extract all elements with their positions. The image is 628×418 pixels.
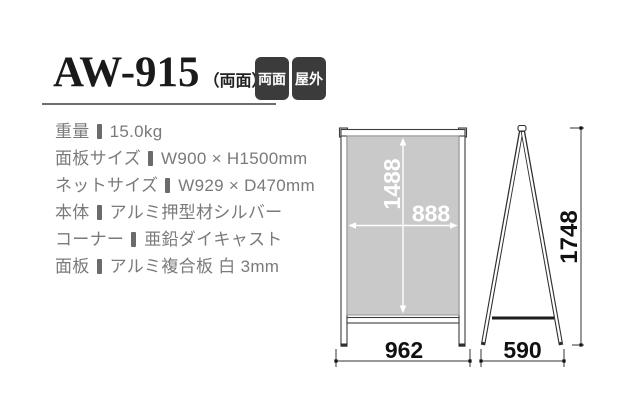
spec-label: 面板サイズ (55, 149, 141, 168)
spec-value: アルミ複合板 白 3mm (110, 257, 280, 276)
side-apex-cap (518, 126, 526, 132)
spec-label: コーナー (55, 230, 124, 249)
side-view-drawing: 590 1748 (479, 126, 584, 368)
badge-double-sided-label: 両面 (258, 69, 286, 89)
title-underline (42, 103, 276, 105)
spec-label: 面板 (55, 257, 90, 276)
spec-separator-bar-icon (131, 232, 136, 247)
product-code: AW-915 (53, 50, 200, 96)
front-bottom-bar (347, 318, 459, 324)
spec-row-weight: 重量15.0kg (55, 118, 315, 145)
spec-separator-bar-icon (165, 178, 170, 193)
spec-value: 15.0kg (110, 122, 163, 141)
spec-value: 亜鉛ダイキャスト (144, 230, 282, 249)
header: AW-915 （両面） (53, 50, 268, 96)
badge-double-sided: 両面 (255, 57, 289, 100)
spec-row-net-size: ネットサイズW929 × D470mm (55, 172, 315, 199)
front-right-foot (459, 344, 466, 347)
spec-row-panel-size: 面板サイズW900 × H1500mm (55, 145, 315, 172)
front-base-dim-dot-left (334, 359, 337, 362)
spec-row-faceplate: 面板アルミ複合板 白 3mm (55, 253, 315, 280)
front-right-rail (459, 130, 465, 346)
front-height-dimension-label: 1488 (379, 158, 405, 209)
spec-row-body: 本体アルミ押型材シルバー (55, 199, 315, 226)
badge-outdoor: 屋外 (292, 57, 326, 100)
front-left-foot (341, 344, 348, 347)
spec-label: ネットサイズ (55, 176, 158, 195)
spec-label: 本体 (55, 203, 90, 222)
front-base-dimension-label: 962 (385, 337, 423, 363)
spec-value: W900 × H1500mm (161, 149, 307, 168)
side-height-dim-dot-bottom (579, 343, 582, 346)
side-height-dimension-label: 1748 (556, 210, 583, 263)
spec-row-corner: コーナー亜鉛ダイキャスト (55, 226, 315, 253)
side-left-leg-core (484, 132, 522, 342)
front-top-bar (341, 130, 465, 137)
front-base-dim-dot-right (468, 359, 471, 362)
side-base-dim-dot-left (479, 359, 482, 362)
spec-separator-bar-icon (97, 259, 102, 274)
spec-separator-bar-icon (97, 124, 102, 139)
side-right-leg-core (523, 132, 561, 342)
spec-label: 重量 (55, 122, 90, 141)
side-height-dim-dot-top (579, 126, 582, 129)
front-left-rail (341, 130, 347, 346)
front-view-drawing: 1488 888 962 (334, 128, 471, 367)
spec-value: W929 × D470mm (178, 176, 315, 195)
spec-value: アルミ押型材シルバー (110, 203, 283, 222)
front-width-dimension-label: 888 (412, 201, 451, 227)
side-base-dim-dot-right (562, 359, 565, 362)
spec-separator-bar-icon (148, 151, 153, 166)
side-base-dimension-label: 590 (503, 337, 541, 363)
badge-outdoor-label: 屋外 (295, 69, 323, 89)
spec-separator-bar-icon (97, 205, 102, 220)
spec-list: 重量15.0kg 面板サイズW900 × H1500mm ネットサイズW929 … (55, 118, 315, 280)
technical-drawing: 1488 888 962 590 1748 (325, 115, 628, 385)
